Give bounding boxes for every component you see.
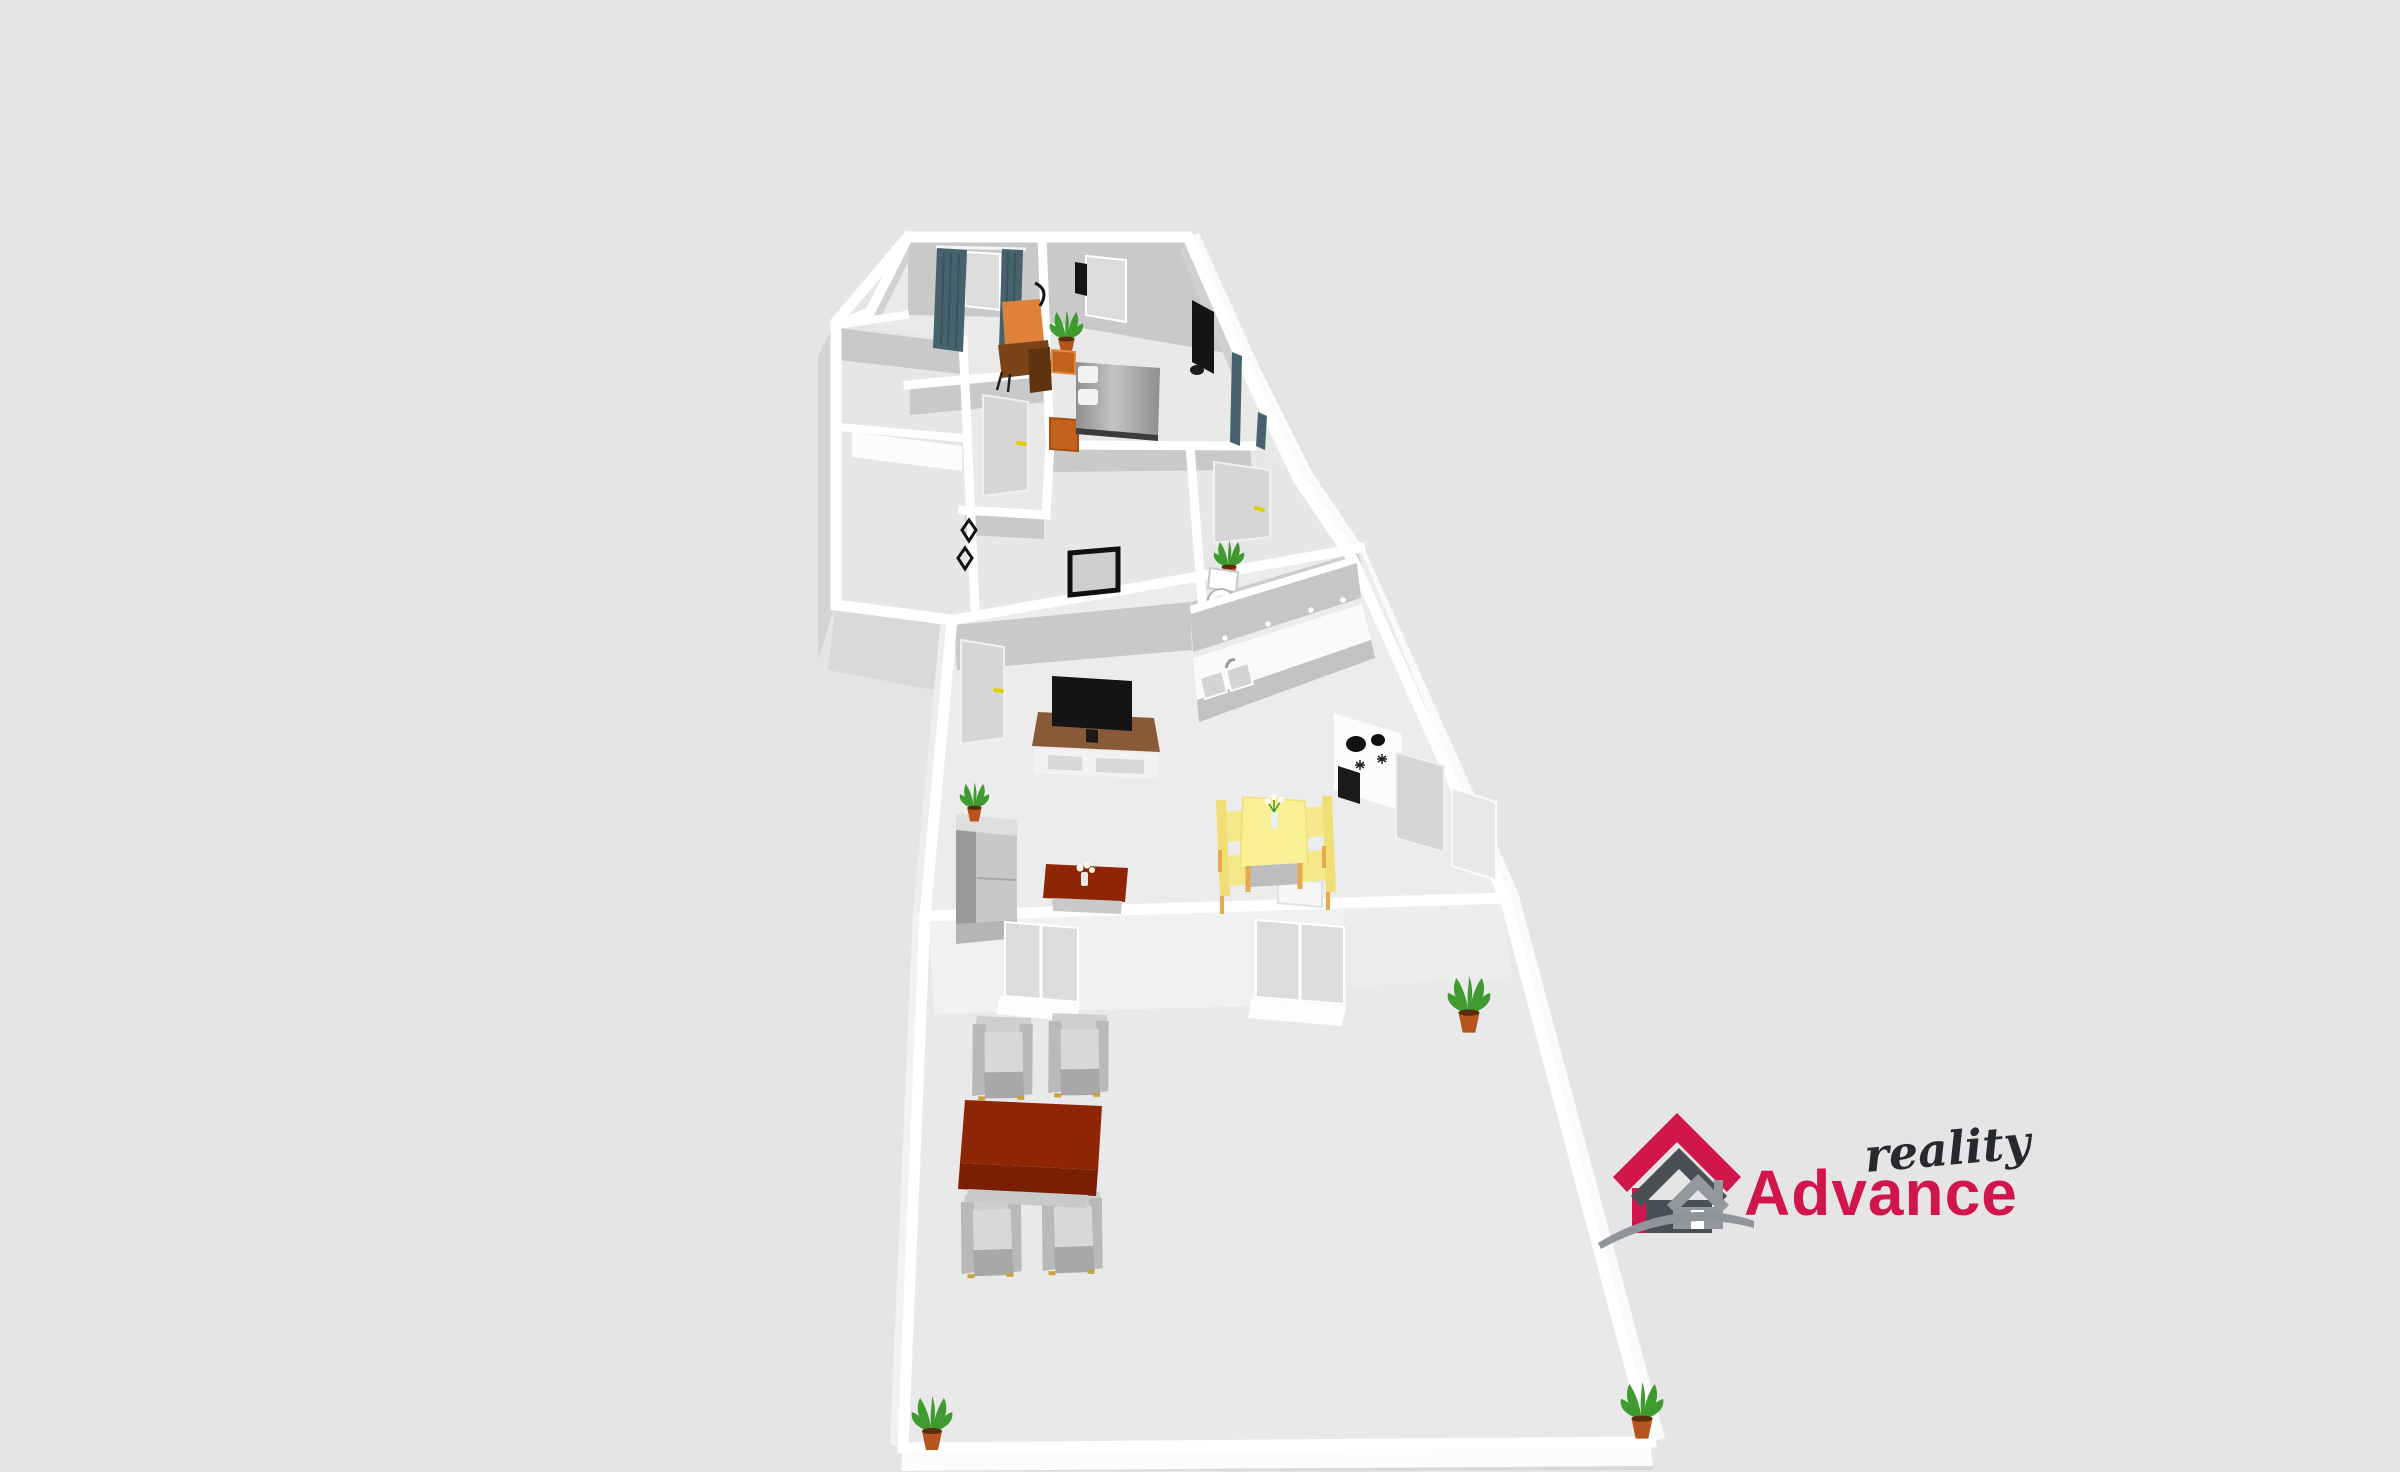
dining-chair [1322,796,1334,846]
floor-plan [818,233,1665,1471]
door-handle [995,690,1002,691]
kitchen-wall-door [1396,752,1444,852]
desk-chair [1002,299,1044,345]
bedroom2-bottom-wall [1050,445,1252,446]
curtain-rod [936,247,1026,249]
desk-drawers [1028,347,1052,393]
armchair [1046,1013,1111,1099]
door-handle [1018,443,1025,444]
advance-reality-logo: Advance reality [1598,1113,2036,1249]
floorplan-canvas: Advance reality [0,0,2400,1472]
coffee-table [958,1100,1102,1208]
nightstand [1050,418,1078,451]
armchair [960,1194,1023,1279]
armchair [970,1016,1035,1102]
floorplan-render-page: Advance reality [0,0,2400,1472]
hall-bottom-wall [963,510,1046,515]
bedroom2-window [1086,256,1126,322]
television [1052,676,1132,731]
kitchen-wall-panel [1452,788,1496,880]
curtain-strip [1230,352,1242,446]
house-logo-icon [1598,1113,1754,1249]
nightstand [1052,350,1075,374]
double-bed [1076,362,1160,441]
pillow [1078,389,1098,405]
bathroom-door [1214,462,1270,543]
door-handle [1256,508,1263,510]
burner [1371,734,1385,746]
picture-frame [1070,549,1118,595]
burner [1346,736,1366,752]
dining-chair [1216,800,1228,850]
pillow [1078,366,1098,383]
bedroom1-window [965,252,1000,310]
hall-door [983,395,1028,496]
wardrobe-panel [1075,262,1087,296]
side-table [1043,862,1128,915]
